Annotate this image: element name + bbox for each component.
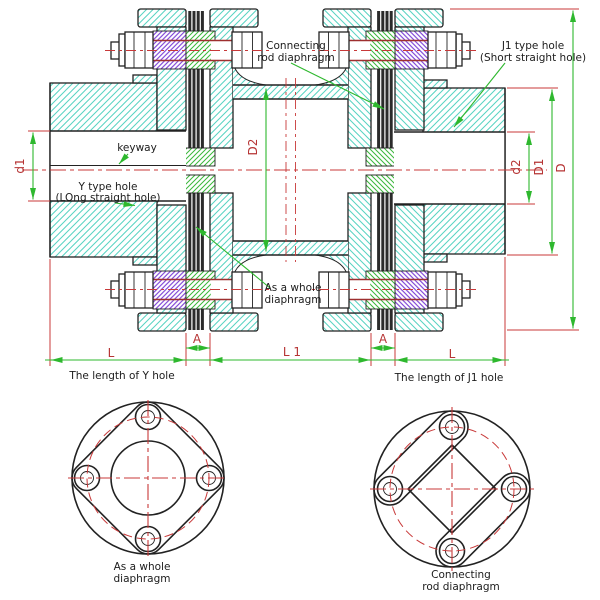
dim-label-d1: d1 xyxy=(13,158,27,173)
callout-j1-hole-1: J1 type hole xyxy=(501,40,564,52)
note-length-y: The length of Y hole xyxy=(68,370,174,382)
dim-label-D: D xyxy=(554,163,568,172)
coupling-engineering-drawing: d1 D2 d2 D1 D L A L 1 A L keyway Y type … xyxy=(0,0,600,600)
bottom-bolt xyxy=(105,271,270,309)
caption-right-view-1: Connecting xyxy=(431,569,491,581)
dim-label-L-right: L xyxy=(449,347,456,361)
connecting-rod-link xyxy=(429,466,536,573)
caption-left-view-2: diaphragm xyxy=(114,573,171,585)
callout-keyway: keyway xyxy=(117,142,157,154)
dim-label-D1: D1 xyxy=(532,159,546,176)
callout-whole-2: diaphragm xyxy=(265,294,322,306)
caption-right-view-2: rod diaphragm xyxy=(422,581,500,593)
dim-label-D2: D2 xyxy=(246,139,260,156)
note-length-j1: The length of J1 hole xyxy=(394,372,504,384)
dim-label-d2: d2 xyxy=(509,159,523,174)
callout-connecting-2: rod diaphragm xyxy=(257,52,335,64)
end-view-whole-diaphragm: As a whole diaphragm xyxy=(68,400,228,585)
end-view-connecting-rod: Connecting rod diaphragm xyxy=(367,404,536,593)
dim-label-A-left: A xyxy=(193,332,202,346)
top-bolt xyxy=(105,31,270,69)
dim-label-A-right: A xyxy=(379,332,388,346)
callout-whole-1: As a whole xyxy=(265,282,322,294)
dim-label-L-left: L xyxy=(108,346,115,360)
callout-j1-hole-2: (Short straight hole) xyxy=(480,52,586,64)
dim-label-L1: L 1 xyxy=(283,345,301,359)
outer-circle xyxy=(374,411,530,567)
caption-left-view-1: As a whole xyxy=(114,561,171,573)
connecting-rod-link xyxy=(367,404,474,511)
callout-y-hole-2: (LOng straight hole) xyxy=(55,192,160,204)
callout-connecting-1: Connecting xyxy=(266,40,326,52)
